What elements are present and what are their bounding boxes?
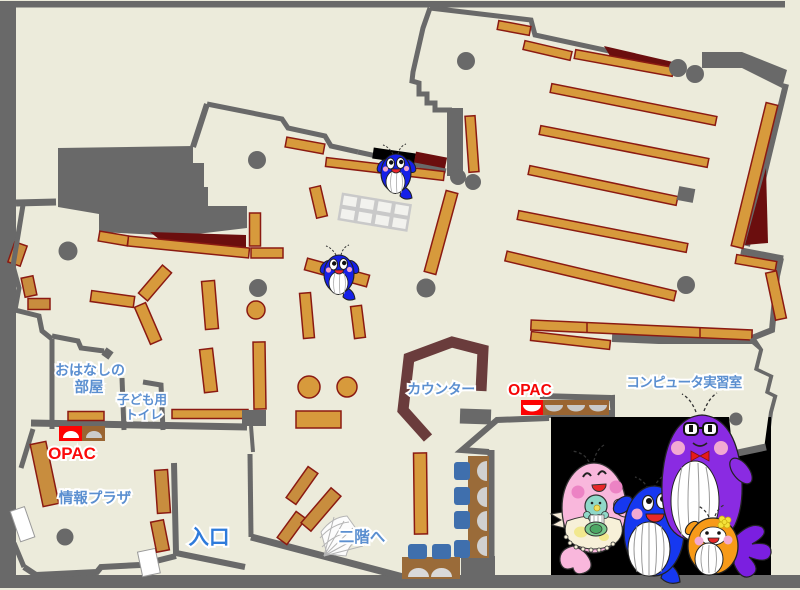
svg-text:コンピュータ実習室: コンピュータ実習室 <box>626 374 742 390</box>
svg-text:おはなしの: おはなしの <box>55 362 125 378</box>
svg-text:入口: 入口 <box>189 526 230 549</box>
svg-text:OPAC: OPAC <box>48 444 96 463</box>
svg-text:情報プラザ: 情報プラザ <box>59 489 132 507</box>
svg-text:OPAC: OPAC <box>508 382 552 399</box>
svg-text:部屋: 部屋 <box>75 378 104 396</box>
svg-text:二階へ: 二階へ <box>339 528 386 546</box>
svg-text:カウンター: カウンター <box>407 381 475 397</box>
svg-text:子ども用: 子ども用 <box>117 393 167 407</box>
svg-text:トイレ: トイレ <box>125 408 163 422</box>
